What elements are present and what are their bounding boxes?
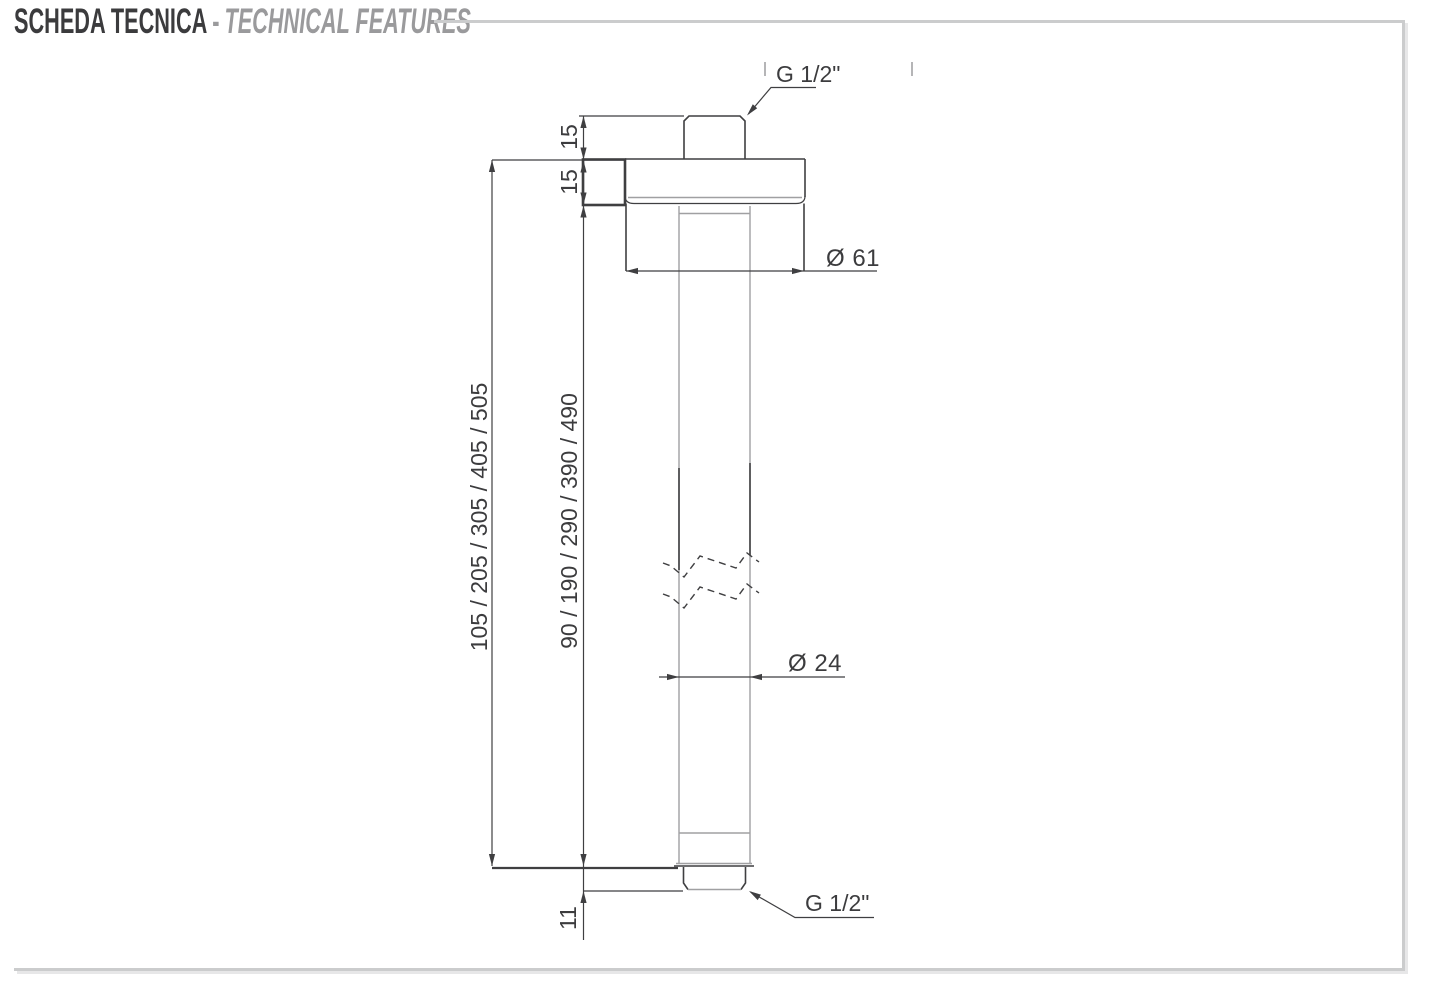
- bottom-thread-nipple: [684, 867, 746, 890]
- dim-pipe-diameter-label: Ø 24: [788, 650, 842, 677]
- dimension-labels: G 1/2" Ø 61 Ø 24 G 1/2" 15 15 105 / 205 …: [466, 61, 880, 930]
- dim-top-nipple-height-label: 15: [556, 124, 582, 150]
- technical-sheet: SCHEDA TECNICA-TECHNICAL FEATURES: [0, 0, 1434, 998]
- dim-bottom-protrusion-label: 11: [555, 906, 581, 930]
- ceiling-flange: [625, 159, 805, 204]
- dim-top-thread-label: G 1/2": [776, 61, 840, 87]
- leader-lines: [749, 88, 875, 918]
- dim-flange-diameter-label: Ø 61: [826, 245, 880, 272]
- break-lines: [663, 553, 759, 608]
- dim-flange-height-label: 15: [556, 169, 582, 195]
- dim-pipe-lengths-label: 90 / 190 / 290 / 390 / 490: [556, 393, 582, 649]
- extension-lines: [492, 116, 684, 891]
- dim-overall-lengths-label: 105 / 205 / 305 / 405 / 505: [466, 383, 492, 652]
- top-thread-nipple: [684, 116, 745, 159]
- dimension-arrows: [489, 104, 804, 903]
- ceiling-section-box: [583, 160, 625, 206]
- technical-drawing: G 1/2" Ø 61 Ø 24 G 1/2" 15 15 105 / 205 …: [0, 0, 1434, 998]
- dim-bottom-thread-label: G 1/2": [805, 890, 869, 916]
- shower-arm-pipe: [674, 206, 754, 866]
- dimension-lines: [492, 116, 877, 940]
